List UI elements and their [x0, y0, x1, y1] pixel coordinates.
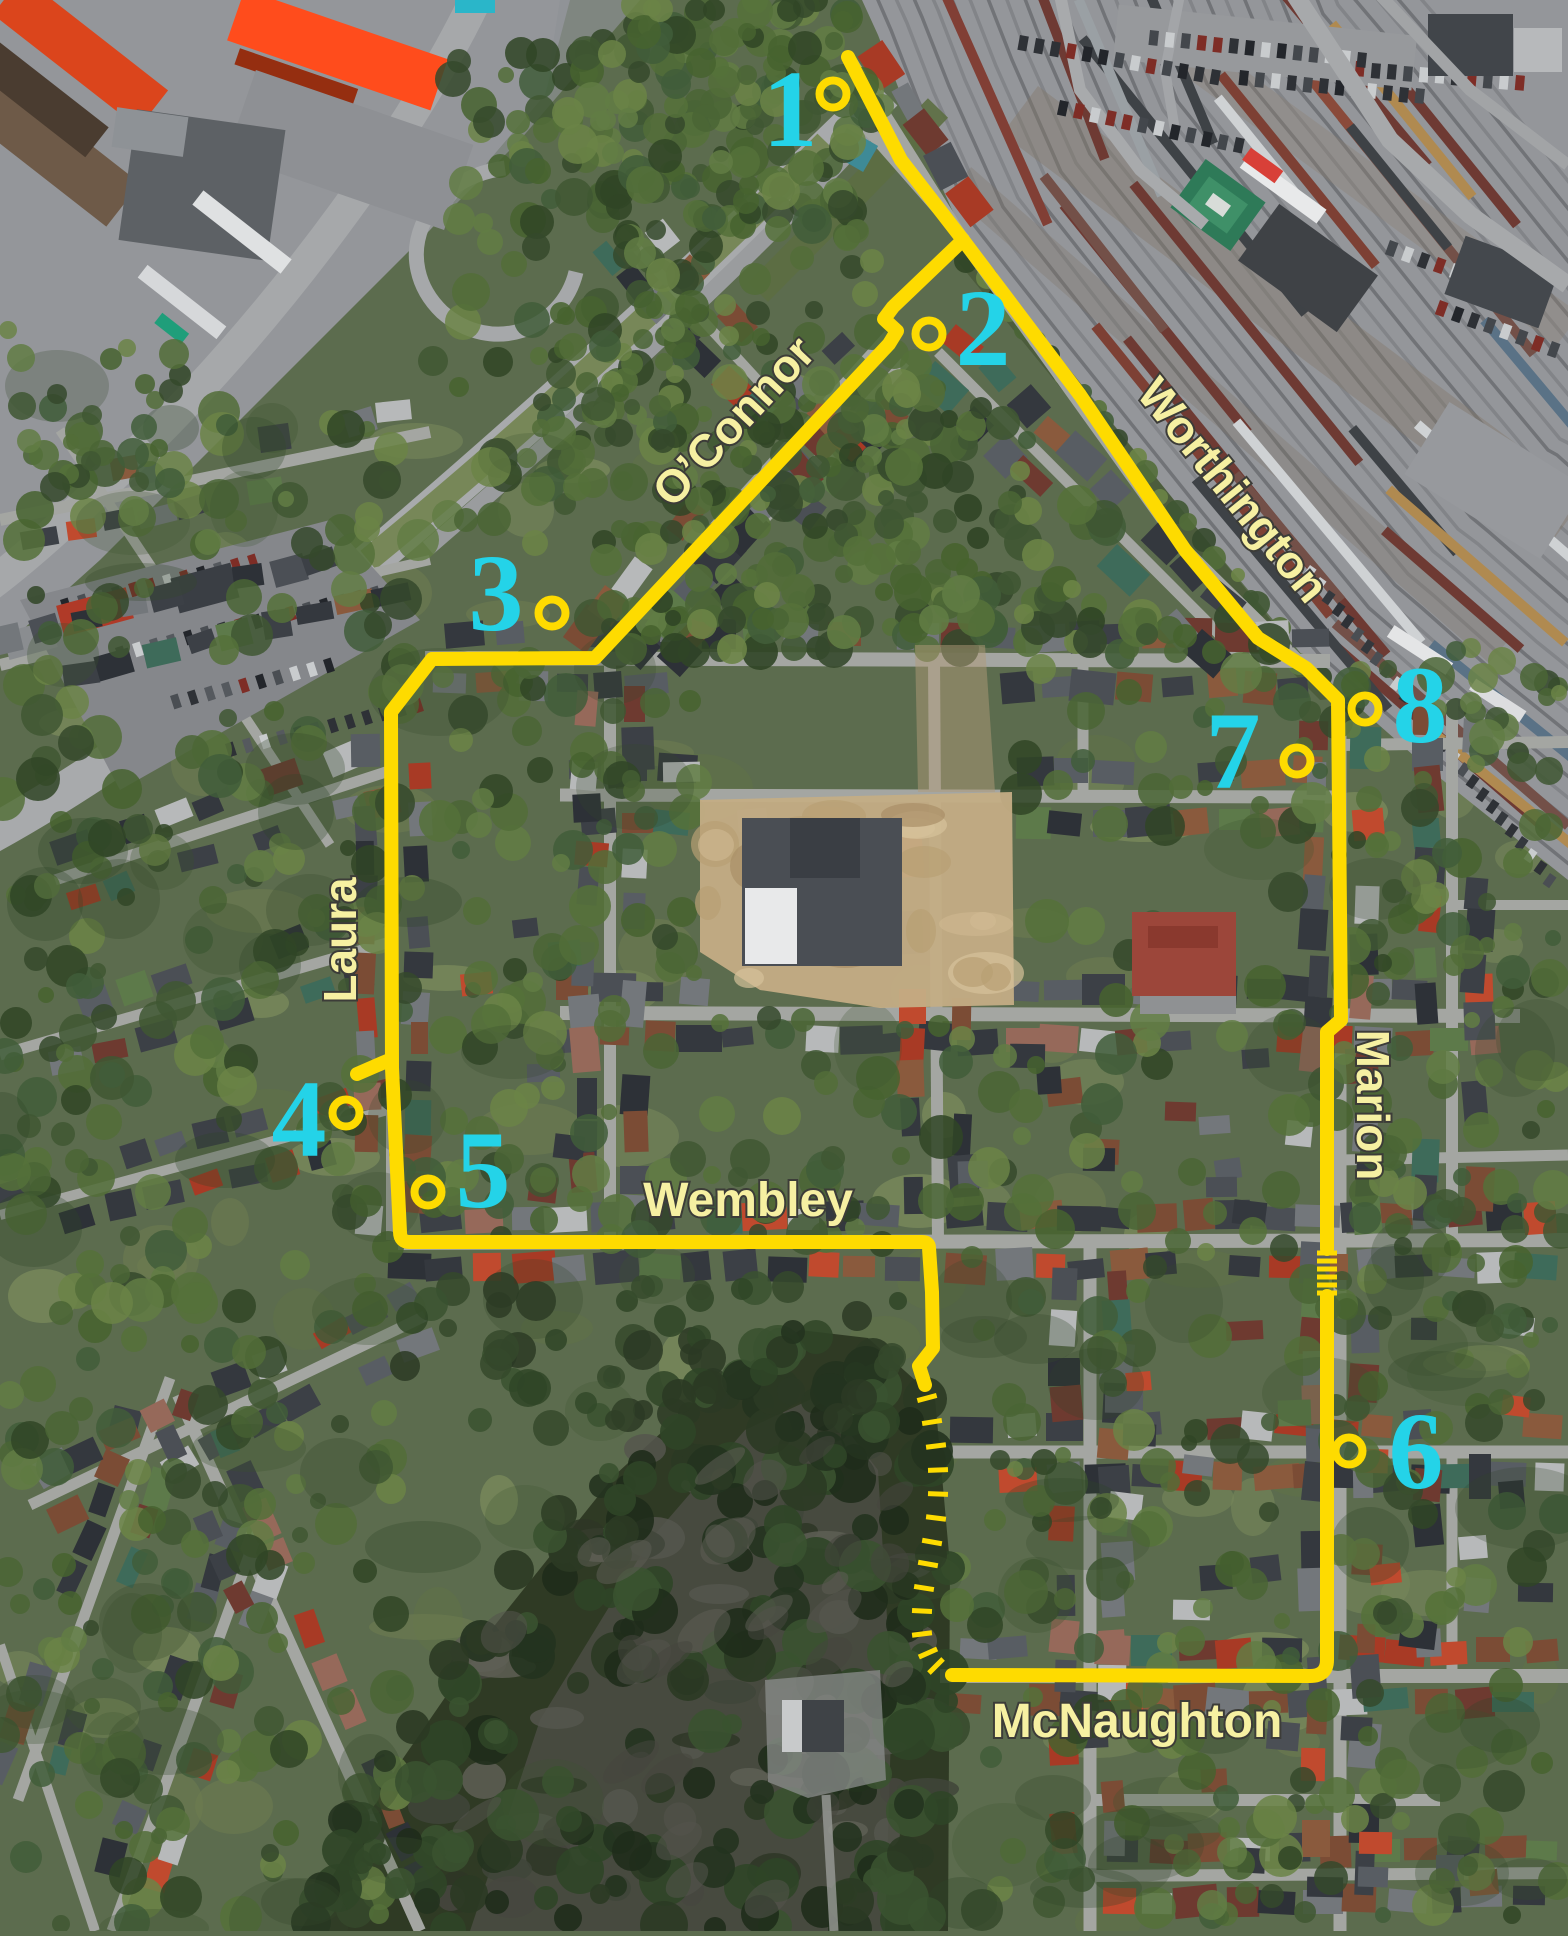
svg-text:4: 4 — [272, 1058, 327, 1180]
svg-text:7: 7 — [1206, 690, 1261, 812]
svg-text:5: 5 — [456, 1109, 511, 1231]
svg-text:8: 8 — [1393, 644, 1448, 766]
svg-text:6: 6 — [1389, 1390, 1444, 1512]
svg-text:3: 3 — [469, 532, 524, 654]
svg-text:McNaughton: McNaughton — [992, 1695, 1283, 1748]
svg-text:Marion: Marion — [1347, 1030, 1399, 1181]
svg-text:2: 2 — [956, 267, 1011, 389]
svg-text:1: 1 — [763, 48, 818, 170]
svg-text:Laura: Laura — [314, 877, 366, 1003]
svg-text:Wembley: Wembley — [643, 1174, 853, 1227]
